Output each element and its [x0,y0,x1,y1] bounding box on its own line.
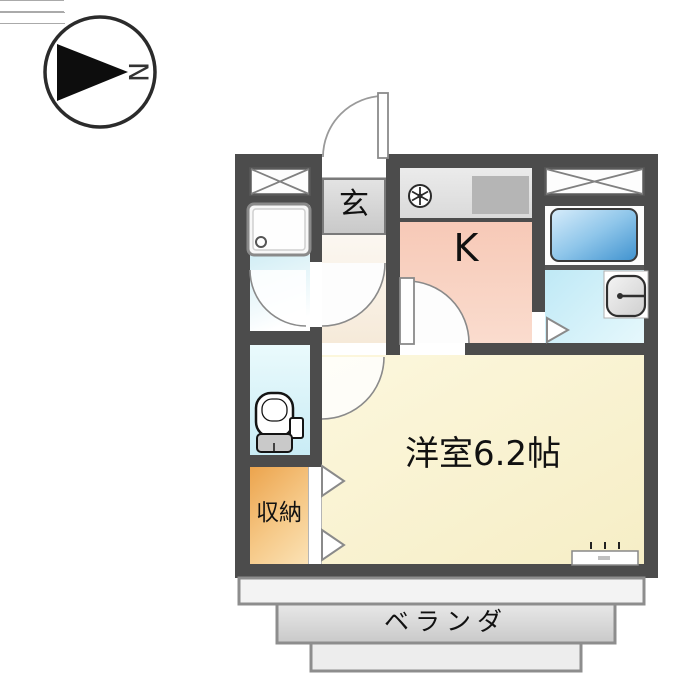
toilet-icon [256,393,303,452]
compass-icon: N [45,17,155,127]
kitchen-door-icon [400,278,469,344]
ventilation-fan-icon [409,185,431,207]
closet-x-left-icon [251,169,310,195]
floor-plan-canvas: N [0,0,700,700]
veranda-label: ベランダ [277,608,615,636]
closet-x-right-icon [546,169,644,195]
western-room-door-icon [322,357,384,419]
kitchen-label: K [400,228,532,270]
entrance-door-icon [323,93,388,158]
washbasin-icon [604,271,648,318]
fixtures-overlay: N [0,0,700,700]
western-room-label: 洋室6.2帖 [322,436,644,473]
storage-folding-door-icon [322,466,344,560]
washroom-door-icon [250,270,306,326]
bathroom-folding-door-icon [547,318,568,342]
bathtub-icon [551,209,637,261]
window-to-veranda-icon [572,542,638,565]
storage-label: 収納 [248,501,310,526]
compass-north-label: N [122,62,153,82]
genkan-label: 玄 [322,188,386,221]
washing-machine-pan-icon [248,204,310,255]
hall-door-icon [322,263,385,326]
